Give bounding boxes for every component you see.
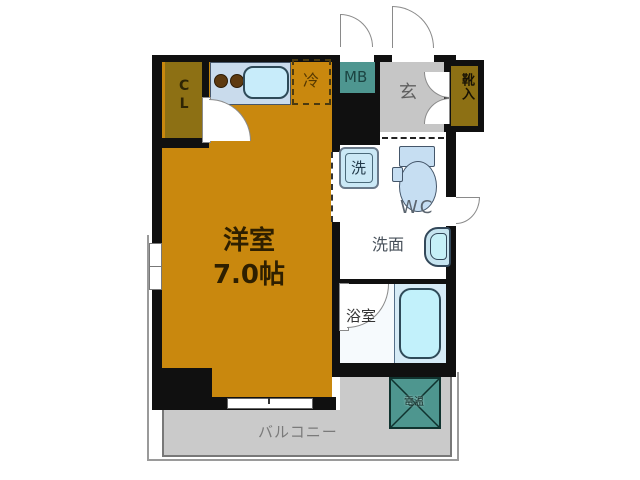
- floorplan: CL 冷 MB 玄 靴入 洗 WC 洗面 浴室: [0, 0, 640, 480]
- toilet-flush-handle: [392, 167, 403, 182]
- vanity-basin-bowl: [430, 233, 447, 260]
- western-room-name: 洋室: [187, 224, 311, 258]
- entrance-door-arc: [392, 6, 434, 48]
- washroom-door-arc: [456, 197, 480, 224]
- closet-label: CL: [176, 78, 192, 114]
- entrance-partition-dashed-line: [382, 137, 444, 139]
- washer-label: 洗: [351, 160, 366, 177]
- stove-burner-icon: [214, 74, 228, 88]
- western-room-label: 洋室 7.0帖: [187, 224, 311, 292]
- kitchen-sink: [243, 66, 289, 99]
- balcony-label: バルコニー: [258, 424, 338, 441]
- water-heater-label: 電温: [404, 397, 424, 409]
- left-window-sash: [149, 243, 162, 267]
- vanity-label: 洗面: [372, 236, 404, 254]
- balcony-window: [227, 398, 313, 409]
- stove-burner-icon: [230, 74, 244, 88]
- wall-left: [152, 55, 162, 410]
- wall-closet-bottom: [152, 138, 209, 148]
- balcony-outline-right: [457, 372, 459, 461]
- meter-box-label: MB: [344, 69, 367, 86]
- left-window-sash: [149, 266, 162, 290]
- bathroom-label: 浴室: [346, 308, 376, 325]
- wall-closet-right: [202, 55, 209, 97]
- balcony-outline-bottom: [147, 459, 459, 461]
- refrigerator-label: 冷: [303, 72, 319, 90]
- wall-corner-chunk: [152, 368, 212, 410]
- balcony-window-center-tick: [268, 398, 270, 404]
- western-room-size: 7.0帖: [187, 258, 311, 292]
- bathtub: [399, 288, 441, 359]
- meterbox-door-opening: [340, 46, 374, 62]
- wall-bathroom-bottom: [332, 363, 456, 377]
- entrance-label: 玄: [399, 83, 417, 104]
- shoe-cabinet-label: 靴入: [458, 73, 473, 101]
- toilet-label: WC: [400, 198, 434, 219]
- meterbox-door-arc: [340, 14, 373, 47]
